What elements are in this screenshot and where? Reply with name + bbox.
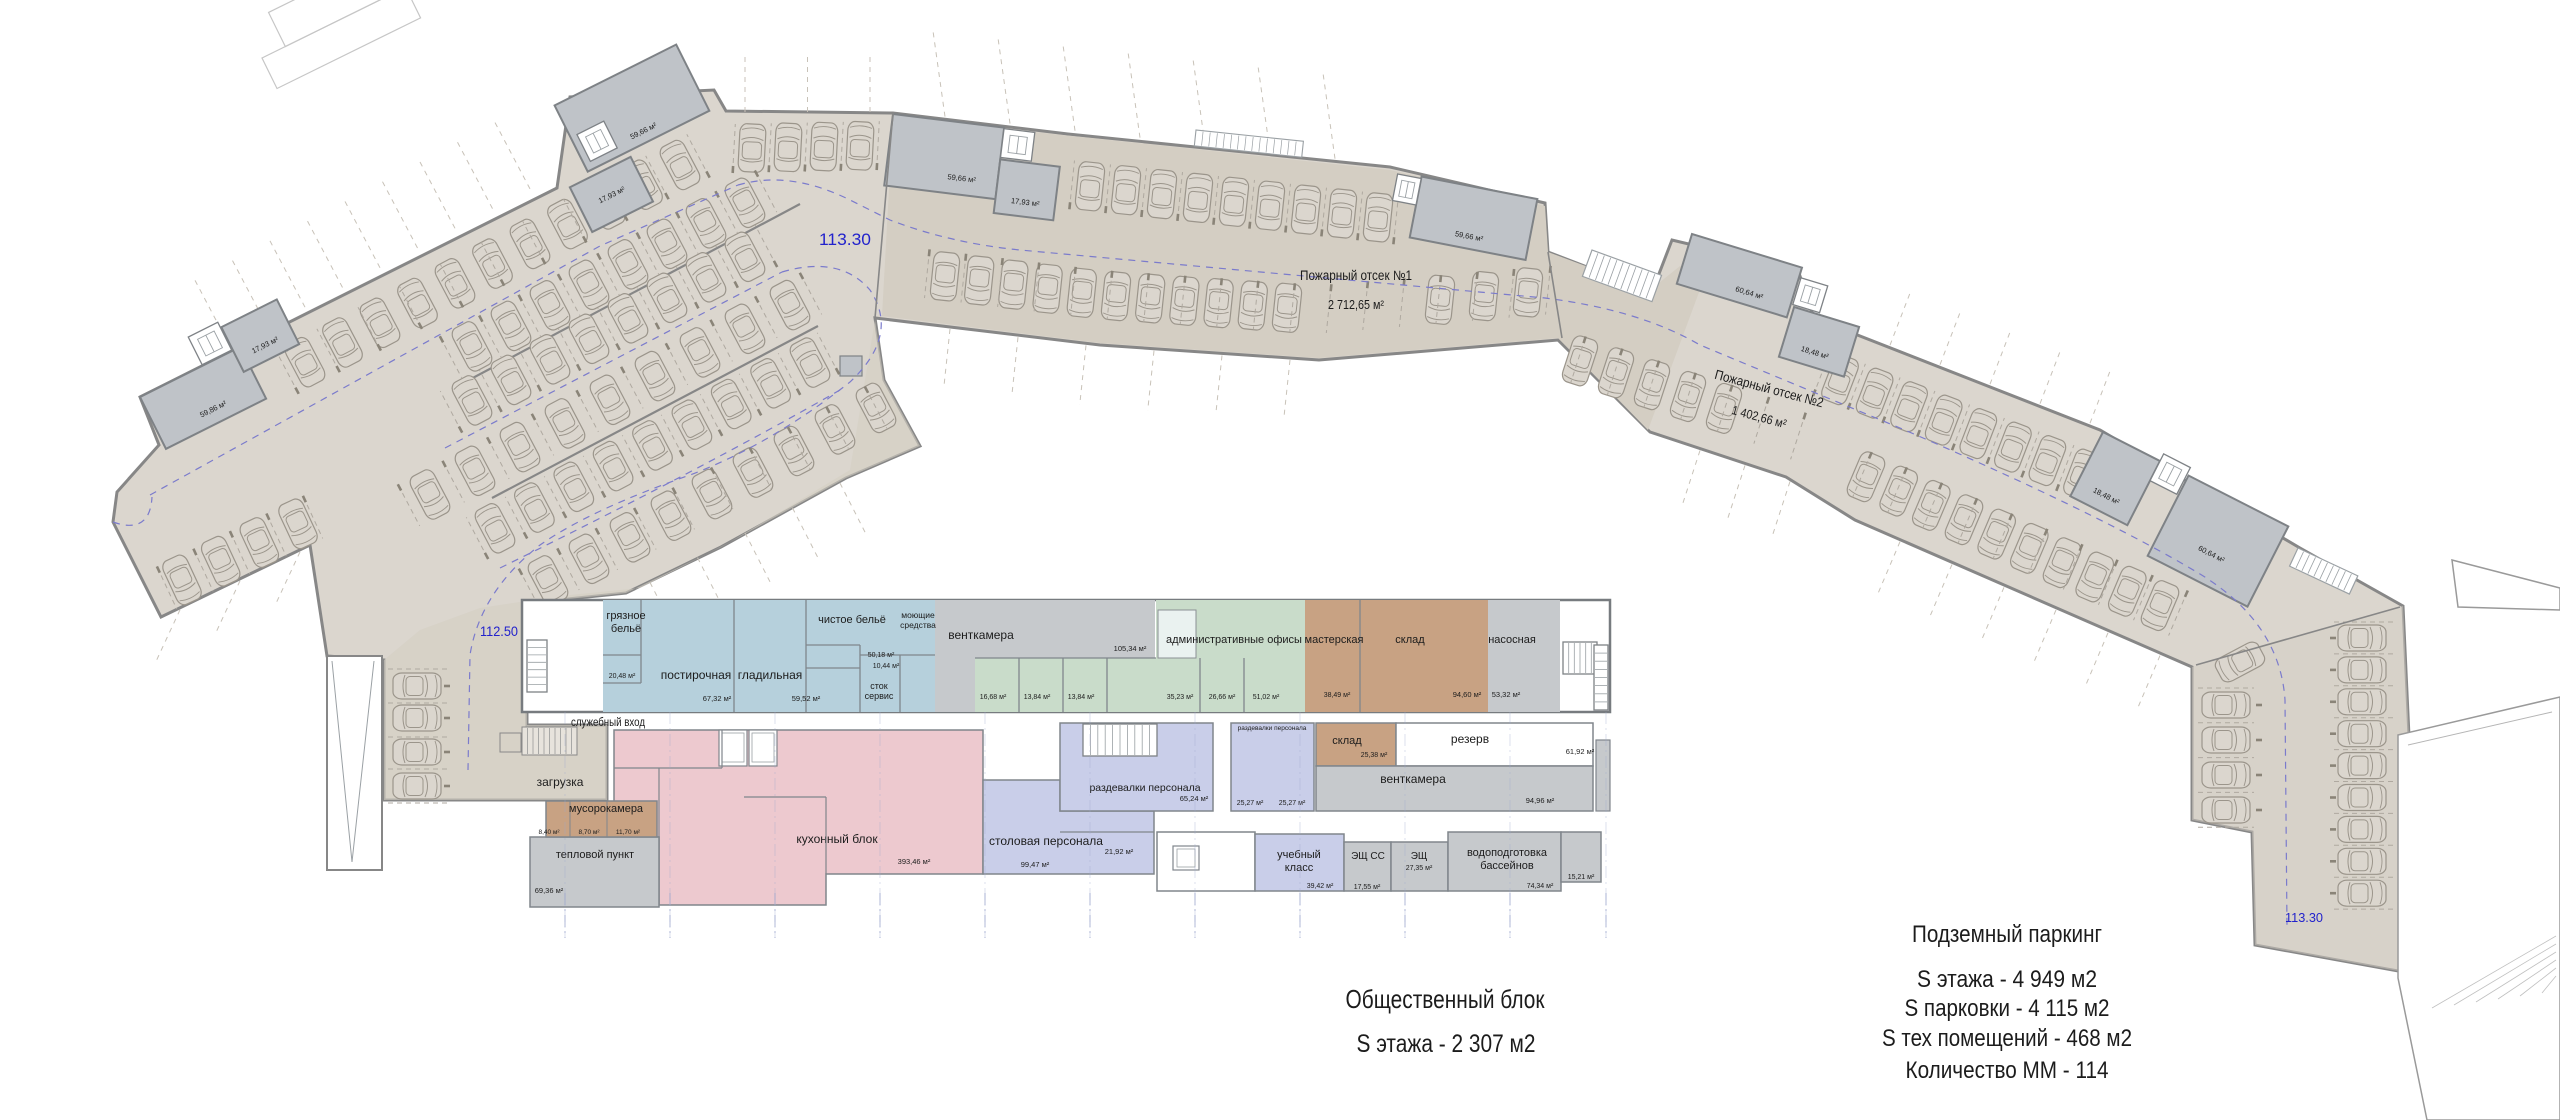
svg-text:Общественный блок: Общественный блок — [1346, 984, 1545, 1014]
svg-text:ЭЩ СС: ЭЩ СС — [1351, 851, 1385, 862]
svg-text:39,42 м²: 39,42 м² — [1307, 883, 1334, 890]
svg-text:бассейнов: бассейнов — [1480, 860, 1534, 872]
svg-text:Пожарный отсек №1: Пожарный отсек №1 — [1300, 268, 1412, 283]
svg-text:8,70 м²: 8,70 м² — [578, 829, 600, 836]
svg-text:61,92 м²: 61,92 м² — [1566, 747, 1595, 756]
svg-text:2 712,65 м²: 2 712,65 м² — [1328, 298, 1384, 312]
svg-text:94,96 м²: 94,96 м² — [1526, 796, 1555, 805]
svg-text:склад: склад — [1395, 634, 1425, 646]
svg-text:столовая персонала: столовая персонала — [989, 834, 1103, 848]
svg-text:венткамера: венткамера — [1380, 772, 1446, 786]
svg-text:26,66 м²: 26,66 м² — [1209, 694, 1236, 701]
svg-text:гладильная: гладильная — [738, 668, 803, 682]
svg-text:венткамера: венткамера — [948, 628, 1014, 642]
svg-text:94,60 м²: 94,60 м² — [1453, 690, 1482, 699]
svg-text:чистое бельё: чистое бельё — [818, 614, 886, 626]
svg-text:мастерская: мастерская — [1305, 634, 1364, 646]
svg-text:13,84 м²: 13,84 м² — [1024, 694, 1051, 701]
svg-text:35,23 м²: 35,23 м² — [1167, 694, 1194, 701]
svg-text:служебный вход: служебный вход — [571, 715, 645, 729]
svg-text:резерв: резерв — [1451, 732, 1489, 746]
svg-text:38,49 м²: 38,49 м² — [1324, 692, 1351, 699]
svg-text:кухонный блок: кухонный блок — [796, 832, 878, 846]
svg-text:склад: склад — [1332, 735, 1362, 747]
svg-text:административные офисы: административные офисы — [1166, 634, 1302, 646]
svg-text:сток: сток — [870, 681, 888, 691]
svg-text:21,92 м²: 21,92 м² — [1105, 847, 1134, 856]
svg-text:постирочная: постирочная — [661, 668, 732, 682]
svg-text:105,34 м²: 105,34 м² — [1114, 644, 1147, 653]
svg-text:67,32 м²: 67,32 м² — [703, 694, 732, 703]
svg-text:17,55 м²: 17,55 м² — [1354, 884, 1381, 891]
svg-text:53,32 м²: 53,32 м² — [1492, 690, 1521, 699]
svg-text:69,36 м²: 69,36 м² — [535, 886, 564, 895]
svg-text:8,40 м²: 8,40 м² — [538, 829, 560, 836]
svg-text:Количество ММ - 114: Количество ММ - 114 — [1906, 1057, 2109, 1084]
svg-text:S этажа - 2 307 м2: S этажа - 2 307 м2 — [1357, 1030, 1536, 1058]
svg-text:мусорокамера: мусорокамера — [569, 803, 644, 815]
svg-text:грязное: грязное — [606, 610, 645, 622]
svg-text:393,46 м²: 393,46 м² — [898, 857, 931, 866]
svg-text:74,34 м²: 74,34 м² — [1527, 883, 1554, 890]
svg-text:загрузка: загрузка — [537, 775, 584, 789]
svg-text:65,24 м²: 65,24 м² — [1180, 794, 1209, 803]
svg-text:15,21 м²: 15,21 м² — [1568, 874, 1595, 881]
svg-text:99,47 м²: 99,47 м² — [1021, 860, 1050, 869]
svg-text:113.30: 113.30 — [819, 230, 871, 249]
svg-text:бельё: бельё — [611, 623, 641, 635]
svg-text:сервис: сервис — [865, 691, 894, 701]
svg-text:моющие: моющие — [901, 610, 935, 620]
svg-text:25,27 м²: 25,27 м² — [1237, 800, 1264, 807]
svg-text:10,44 м²: 10,44 м² — [873, 663, 900, 670]
svg-text:113.30: 113.30 — [2285, 910, 2323, 925]
svg-text:Подземный паркинг: Подземный паркинг — [1912, 921, 2102, 948]
svg-text:16,68 м²: 16,68 м² — [980, 694, 1007, 701]
svg-text:учебный: учебный — [1277, 849, 1321, 861]
svg-text:раздевалки персонала: раздевалки персонала — [1089, 782, 1200, 794]
svg-text:27,35 м²: 27,35 м² — [1406, 865, 1433, 872]
svg-text:средства: средства — [900, 620, 936, 630]
svg-text:тепловой пункт: тепловой пункт — [556, 849, 634, 861]
svg-text:S тех помещений - 468 м2: S тех помещений - 468 м2 — [1882, 1025, 2132, 1052]
svg-text:112.50: 112.50 — [480, 623, 518, 639]
svg-text:водоподготовка: водоподготовка — [1467, 847, 1548, 859]
svg-text:25,38 м²: 25,38 м² — [1361, 752, 1388, 759]
svg-text:59,52 м²: 59,52 м² — [792, 694, 821, 703]
svg-text:S парковки - 4 115 м2: S парковки - 4 115 м2 — [1905, 995, 2110, 1022]
svg-text:11,70 м²: 11,70 м² — [616, 829, 641, 836]
svg-text:насосная: насосная — [1488, 634, 1536, 646]
svg-text:ЭЩ: ЭЩ — [1411, 851, 1428, 862]
svg-text:50,18 м²: 50,18 м² — [868, 652, 895, 659]
svg-text:раздевалки персонала: раздевалки персонала — [1238, 725, 1307, 732]
svg-text:20,48 м²: 20,48 м² — [609, 673, 636, 680]
svg-text:25,27 м²: 25,27 м² — [1279, 800, 1306, 807]
svg-text:13,84 м²: 13,84 м² — [1068, 694, 1095, 701]
svg-text:класс: класс — [1285, 862, 1314, 874]
svg-text:51,02 м²: 51,02 м² — [1253, 694, 1280, 701]
svg-text:S этажа - 4 949 м2: S этажа - 4 949 м2 — [1917, 966, 2097, 993]
